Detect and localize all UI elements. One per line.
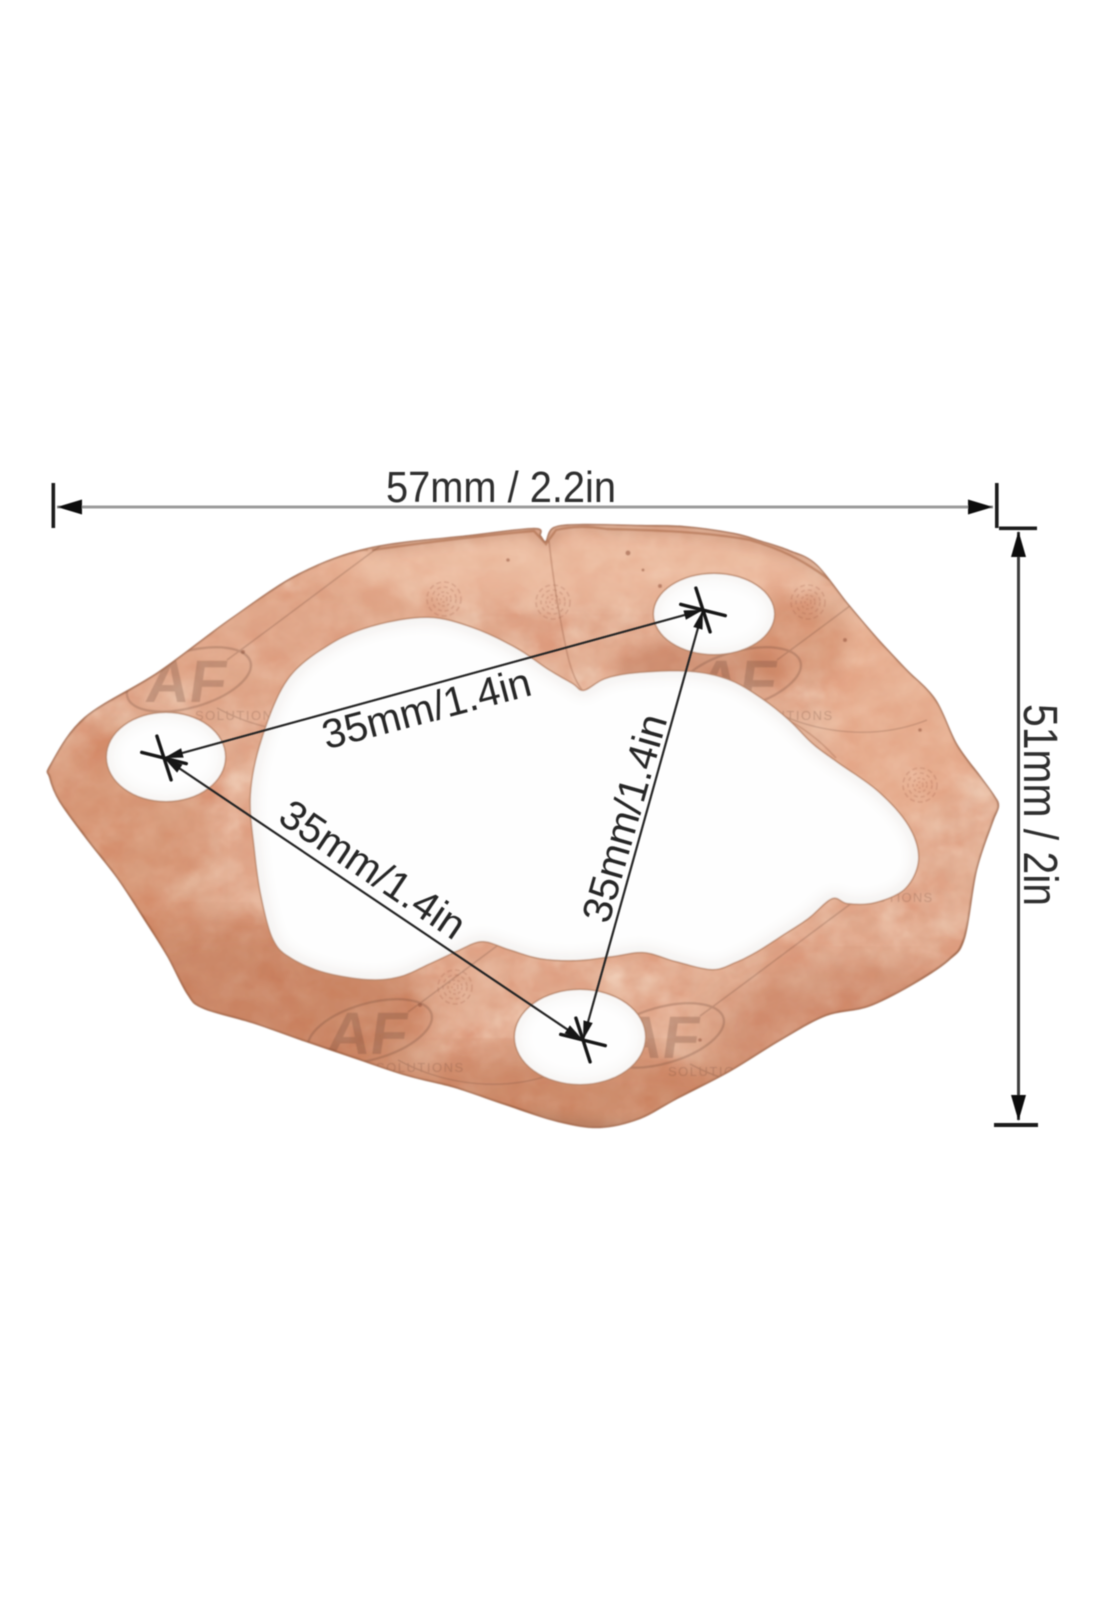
svg-text:51mm / 2in: 51mm / 2in [1013, 704, 1066, 906]
svg-text:57mm / 2.2in: 57mm / 2.2in [386, 463, 616, 512]
